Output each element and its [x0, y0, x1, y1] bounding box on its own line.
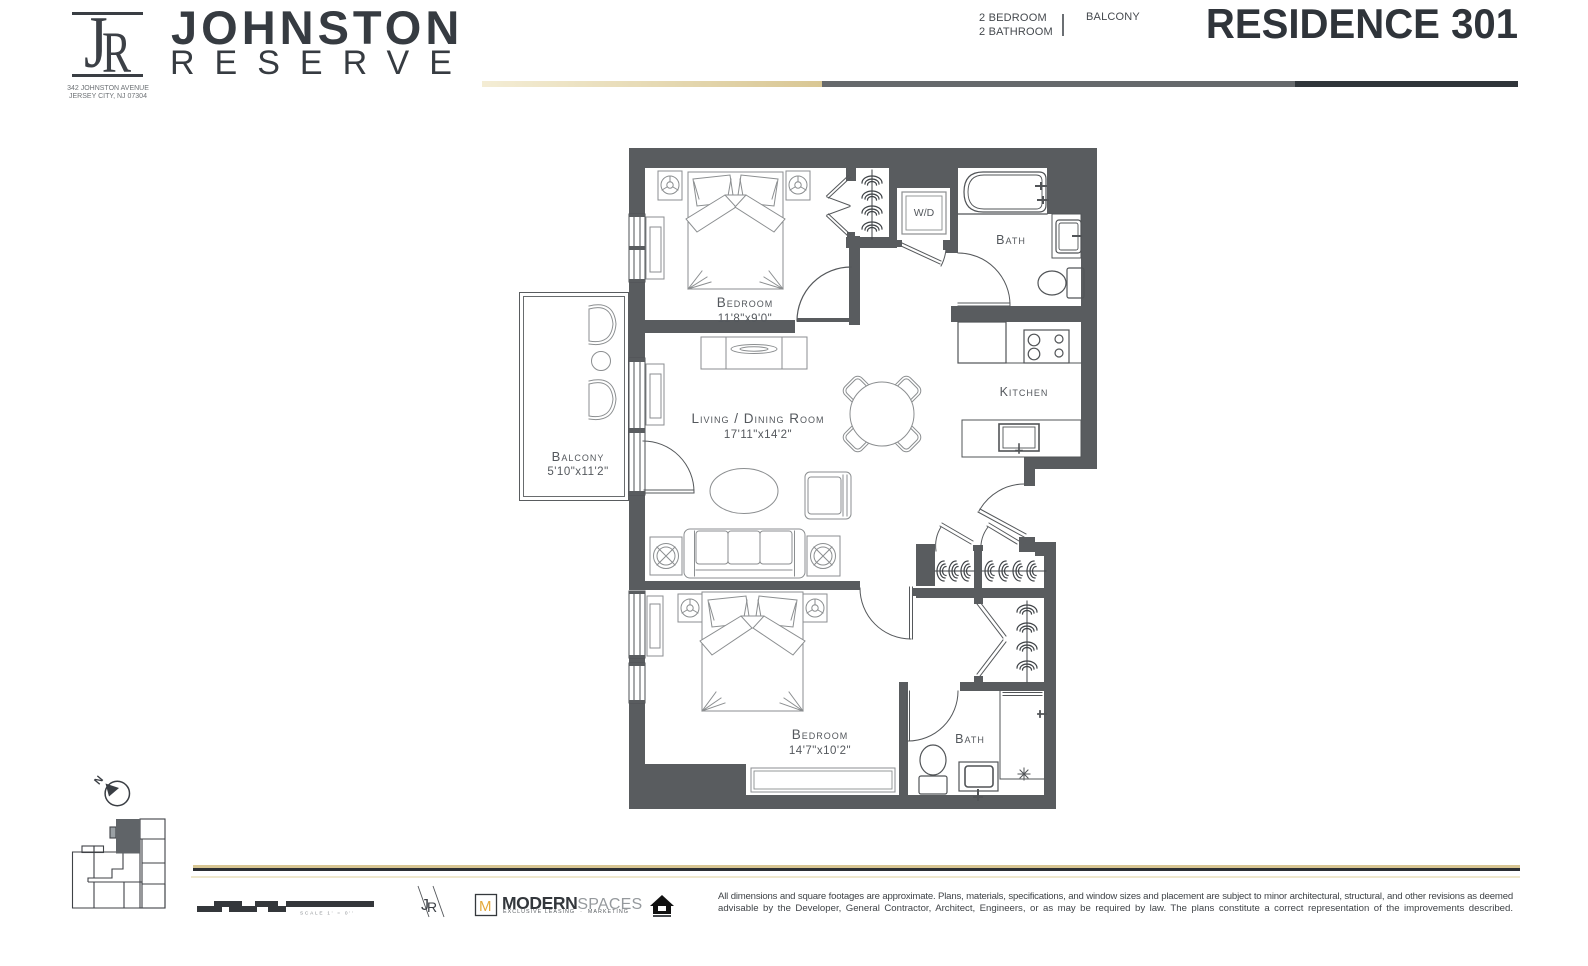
svg-text:17'11"x14'2": 17'11"x14'2"	[724, 429, 792, 441]
svg-text:Balcony: Balcony	[552, 449, 605, 464]
svg-text:Living / Dining Room: Living / Dining Room	[691, 411, 824, 426]
svg-text:11'8"x9'0": 11'8"x9'0"	[718, 313, 772, 325]
svg-text:Kitchen: Kitchen	[1000, 385, 1049, 399]
svg-text:14'7"x10'2": 14'7"x10'2"	[789, 745, 851, 757]
svg-text:5'10"x11'2": 5'10"x11'2"	[547, 466, 608, 478]
svg-text:Bath: Bath	[996, 233, 1026, 247]
svg-text:Bedroom: Bedroom	[717, 295, 774, 310]
svg-text:R: R	[427, 899, 437, 915]
svg-text:Bath: Bath	[955, 732, 985, 746]
svg-text:SCALE 1' = 0'': SCALE 1' = 0''	[300, 911, 354, 917]
svg-text:M: M	[479, 898, 492, 915]
svg-text:W/D: W/D	[914, 207, 935, 219]
svg-text:N: N	[92, 774, 106, 788]
svg-text:Bedroom: Bedroom	[792, 727, 849, 742]
